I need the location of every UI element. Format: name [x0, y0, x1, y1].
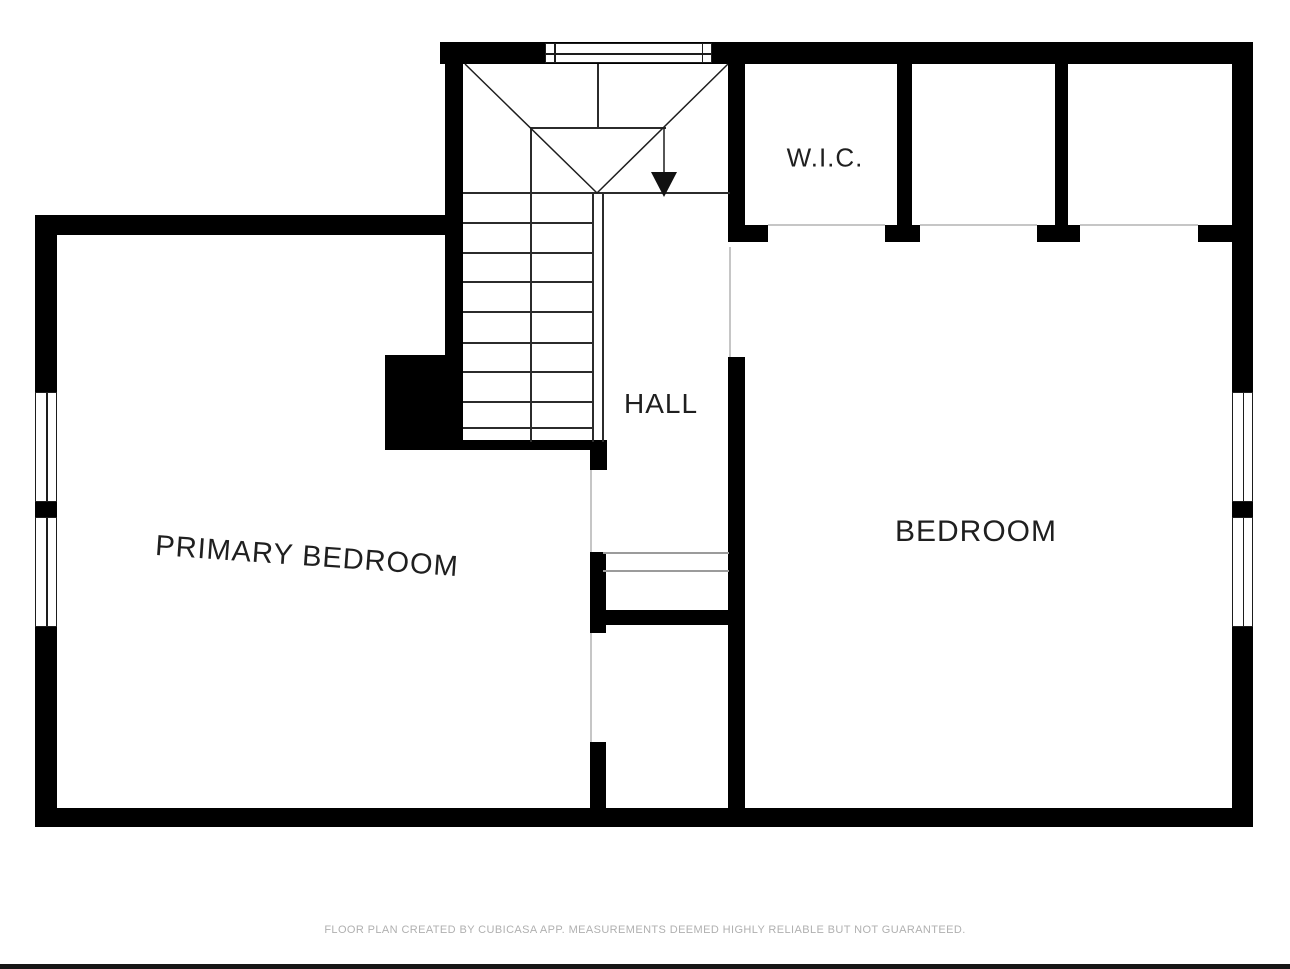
- wall-bottom: [35, 808, 1253, 827]
- wall-hall-right-main: [728, 357, 745, 808]
- room-label-wic: W.I.C.: [787, 143, 864, 174]
- stair-stringer-right-line: [602, 192, 604, 442]
- window-left-2: [35, 517, 57, 627]
- door-opening-bedroom: [729, 247, 731, 357]
- door-opening-primary-bedroom: [590, 470, 592, 552]
- wall-closet-stub-2: [885, 225, 920, 242]
- wall-hall-left-lower: [590, 742, 606, 808]
- window-glass-line: [1243, 518, 1245, 626]
- window-glass-line: [46, 518, 48, 626]
- room-label-bedroom: BEDROOM: [895, 515, 1057, 549]
- wall-closet-stub-3: [1037, 225, 1080, 242]
- door-opening-closet-2: [920, 224, 1037, 226]
- window-right-1: [1232, 392, 1253, 502]
- stair-tread-line: [463, 401, 594, 403]
- door-opening-lower-room: [590, 633, 592, 742]
- stair-tread-line: [463, 252, 594, 254]
- wall-hall-left-jamb: [590, 440, 607, 470]
- wall-stair-bottom: [385, 440, 607, 450]
- window-left-1: [35, 392, 57, 502]
- disclaimer-text: FLOOR PLAN CREATED BY CUBICASA APP. MEAS…: [0, 924, 1290, 936]
- stair-stringer-left-line: [592, 192, 594, 442]
- door-opening-wic: [768, 224, 885, 226]
- window-right-2: [1232, 517, 1253, 627]
- stair-tread-line: [463, 281, 594, 283]
- window-glass-line: [46, 393, 48, 501]
- door-opening-hall-bottom-top-edge: [603, 552, 729, 554]
- floor-plan-canvas: PRIMARY BEDROOM BEDROOM HALL W.I.C. FLOO…: [0, 0, 1290, 969]
- door-opening-hall-bottom-bottom-edge: [603, 570, 729, 572]
- wall-primary-bedroom-top: [35, 215, 445, 235]
- stair-tread-line: [463, 311, 594, 313]
- stairs-down-arrow-icon: [651, 172, 677, 197]
- stair-tread-line: [463, 371, 594, 373]
- wall-lower-room-top: [603, 610, 745, 625]
- stair-tread-line: [463, 427, 594, 429]
- wall-closet-stub-4: [1198, 225, 1232, 242]
- room-label-primary-bedroom: PRIMARY BEDROOM: [154, 530, 460, 584]
- bottom-bar: [0, 964, 1290, 969]
- wall-stair-block: [385, 355, 463, 440]
- wall-closet-stub-1: [728, 225, 768, 242]
- winder-diagonal-left: [465, 64, 597, 193]
- stair-winder-diagonals: [440, 40, 760, 210]
- wall-closet-divider-2: [1055, 64, 1068, 225]
- window-glass-line: [1243, 393, 1245, 501]
- wall-closet-divider-1: [897, 64, 912, 225]
- door-opening-closet-3: [1080, 224, 1198, 226]
- stair-tread-line: [463, 222, 594, 224]
- stair-tread-line: [463, 342, 594, 344]
- room-label-hall: HALL: [624, 388, 698, 420]
